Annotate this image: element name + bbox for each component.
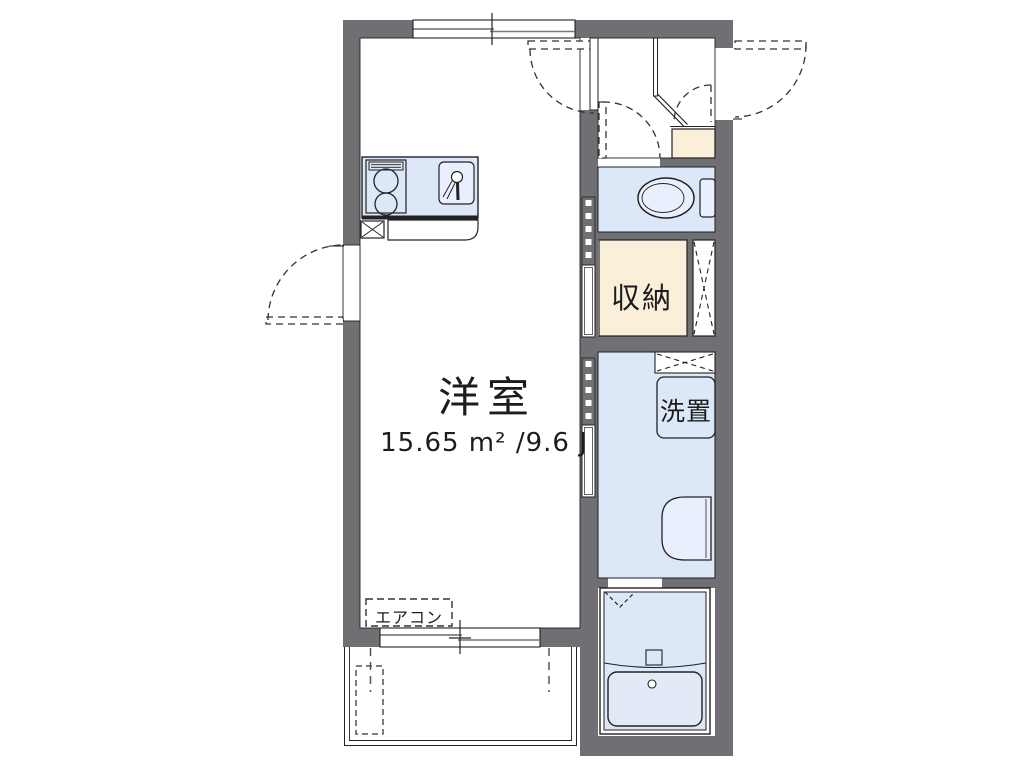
toilet-fixture xyxy=(638,178,715,218)
washer-place-label: 洗置 xyxy=(646,392,726,428)
kitchen-counter-front-edge xyxy=(362,216,478,220)
entry-door-leaf xyxy=(735,41,806,49)
kitchen xyxy=(361,157,478,240)
balcony-outer-line xyxy=(345,647,577,746)
toilet-tank xyxy=(700,179,715,217)
hall-door-leaf xyxy=(528,41,594,49)
entry-door-arc xyxy=(735,45,806,117)
wall-closet-bottom xyxy=(598,336,715,352)
balcony-dashed-box xyxy=(356,666,383,734)
wall-left-lower xyxy=(343,321,360,647)
kitchen-faucet-base xyxy=(452,172,463,183)
wall-washroom-bottom-right xyxy=(662,578,715,588)
bathtub xyxy=(608,672,702,726)
wall-bottom-rightcol xyxy=(580,736,733,756)
entrance-partition-diag-2 xyxy=(658,94,688,125)
vanity-sink xyxy=(662,497,711,560)
entrance xyxy=(654,38,716,158)
left-door-opening xyxy=(343,245,360,321)
floorplan-canvas: 洋室 15.65 m² /9.6 J 収納 洗置 エアコン xyxy=(0,0,1019,775)
hall-door-arc xyxy=(530,49,594,113)
closet-label: 収納 xyxy=(592,275,692,317)
wall-bottom-mid xyxy=(540,628,587,647)
bathroom xyxy=(600,588,710,734)
wall-right-top xyxy=(715,38,733,48)
balcony xyxy=(345,647,577,746)
entrance-partition-vertical xyxy=(654,38,658,96)
wall-top-right xyxy=(575,20,733,38)
left-door-leaf xyxy=(266,317,343,324)
wall-left-upper xyxy=(343,38,360,245)
entrance-partition-diag-1 xyxy=(654,96,684,127)
left-door-arc xyxy=(268,245,343,320)
hall-doorway-frame xyxy=(590,38,598,110)
room-name-label: 洋室 xyxy=(387,364,587,425)
shoebox xyxy=(672,129,715,158)
bathtub-drain xyxy=(648,680,656,688)
wall-top-left xyxy=(343,20,413,38)
room-area-label: 15.65 m² /9.6 J xyxy=(349,428,619,458)
kitchen-faucet-spout xyxy=(458,183,459,200)
wall-toilet-top xyxy=(660,158,715,167)
main-room-outline xyxy=(360,38,580,628)
toilet-door-leaf xyxy=(599,102,606,158)
kitchen-lower-counter xyxy=(388,220,478,240)
wall-washroom-bottom-left xyxy=(598,578,608,588)
toilet-door-arc xyxy=(603,102,660,158)
wall-right xyxy=(715,120,733,756)
wall-toilet-bottom xyxy=(598,232,715,240)
bath-faucet-block xyxy=(646,650,662,665)
aircon-label: エアコン xyxy=(366,604,452,628)
wall-bottom-left xyxy=(343,628,380,647)
